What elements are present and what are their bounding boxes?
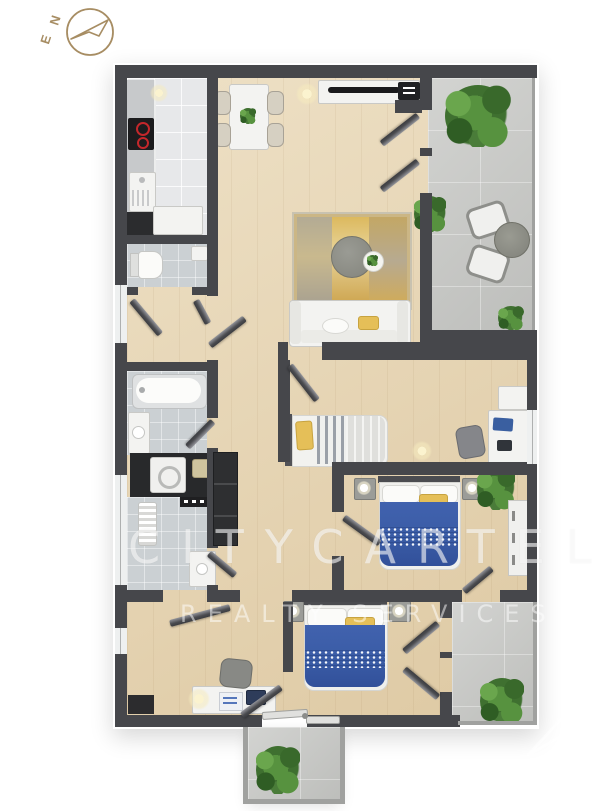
wall-segment xyxy=(500,590,537,602)
compass-circle xyxy=(67,9,113,55)
desk-folder-blue xyxy=(493,417,514,431)
wall-segment xyxy=(115,362,218,371)
wc-corner-sink xyxy=(191,246,208,261)
balcony-bottom-plant xyxy=(256,746,300,794)
wall-segment xyxy=(115,235,218,244)
toilet-bowl xyxy=(138,251,163,279)
sofa-pillow-yellow xyxy=(358,316,379,330)
bed3-lamp xyxy=(392,604,406,618)
wall-segment xyxy=(278,342,288,360)
dining-chair xyxy=(267,123,284,147)
terrace-table xyxy=(494,222,530,258)
wall-segment xyxy=(292,590,462,602)
wall-segment xyxy=(115,65,537,78)
sink-drainer xyxy=(132,190,151,206)
office-papers xyxy=(219,692,243,711)
hall-closet xyxy=(213,452,238,546)
wall-segment xyxy=(332,462,537,475)
plate-plant xyxy=(367,255,378,266)
balcony-railing xyxy=(243,799,345,804)
dining-chair xyxy=(267,91,284,115)
cooktop-burner xyxy=(137,137,149,149)
kitchen-dark-cabinet xyxy=(127,212,154,235)
bed1-blanket xyxy=(346,416,385,464)
wall-segment xyxy=(440,602,452,618)
sofa-pillow xyxy=(322,318,349,334)
bed1-shelf xyxy=(498,386,529,410)
entry-door-leaf xyxy=(306,716,340,724)
office-lamp xyxy=(188,688,210,710)
office-cabinet xyxy=(128,695,154,714)
sink-faucet xyxy=(139,177,145,183)
balcony-railing xyxy=(533,602,537,723)
wall-segment xyxy=(278,360,290,462)
bathtub-basin xyxy=(136,378,201,403)
door-handle xyxy=(302,713,308,719)
terrace-railing xyxy=(532,78,535,330)
window xyxy=(527,410,537,464)
bed2-dot-band xyxy=(380,527,458,546)
compass: N E xyxy=(30,2,130,66)
wall-segment xyxy=(283,602,293,672)
wall-segment xyxy=(115,715,262,727)
wall-segment xyxy=(207,585,218,602)
shower-shelf xyxy=(180,497,207,507)
desk-laptop xyxy=(497,440,512,451)
window xyxy=(115,475,127,585)
office-chair xyxy=(219,657,254,689)
balcony-railing xyxy=(458,721,537,725)
sofa-armrest xyxy=(290,301,301,344)
terrace-plant-small xyxy=(498,306,524,330)
rug-panel xyxy=(297,217,332,305)
bed3-dot-band xyxy=(305,650,385,668)
media-panel xyxy=(398,82,420,100)
washer-drum xyxy=(158,466,181,489)
compass-arrow-icon xyxy=(71,20,108,39)
compass-east-label: E xyxy=(37,33,54,46)
bed2-lamp xyxy=(357,481,371,495)
wall-segment xyxy=(440,652,452,658)
desk-chair-bed1 xyxy=(454,424,486,460)
wall-segment xyxy=(115,590,163,602)
balcony-railing xyxy=(243,727,248,804)
bathtub-faucet xyxy=(139,387,145,393)
wall-segment xyxy=(322,342,537,360)
bed1-striped-sheet xyxy=(317,416,346,464)
bed1-floor-lamp xyxy=(412,441,432,461)
wall-segment xyxy=(420,148,432,156)
terrace-plant-large xyxy=(445,85,511,147)
balcony-right-plant xyxy=(480,678,524,724)
vanity-basin xyxy=(132,426,145,439)
wall-segment xyxy=(207,65,218,296)
bed2-pillow xyxy=(382,485,420,503)
cooktop-burner xyxy=(136,122,150,136)
kitchen-island-cabinet xyxy=(153,206,203,235)
wall-segment xyxy=(332,462,344,512)
bed1-pillow-yellow xyxy=(295,420,314,450)
window xyxy=(115,285,127,343)
radiator xyxy=(138,502,157,546)
floor-plan-page: N E CITYCARTEL REALTY SERVICES xyxy=(0,0,600,811)
table-plant xyxy=(240,108,256,124)
tv-screen xyxy=(328,87,400,93)
compass-north-label: N xyxy=(46,13,63,27)
window xyxy=(115,628,127,654)
wall-segment xyxy=(395,100,422,113)
living-lamp xyxy=(296,83,318,105)
kitchen-spotlight xyxy=(150,84,168,102)
wall-segment xyxy=(440,692,452,715)
shower-sink-basin xyxy=(196,563,208,575)
wall-segment xyxy=(420,193,432,330)
wall-segment xyxy=(345,715,460,727)
wall-segment xyxy=(192,287,218,295)
wall-segment xyxy=(420,330,537,344)
sofa-armrest xyxy=(397,301,408,344)
balcony-railing xyxy=(340,727,345,804)
